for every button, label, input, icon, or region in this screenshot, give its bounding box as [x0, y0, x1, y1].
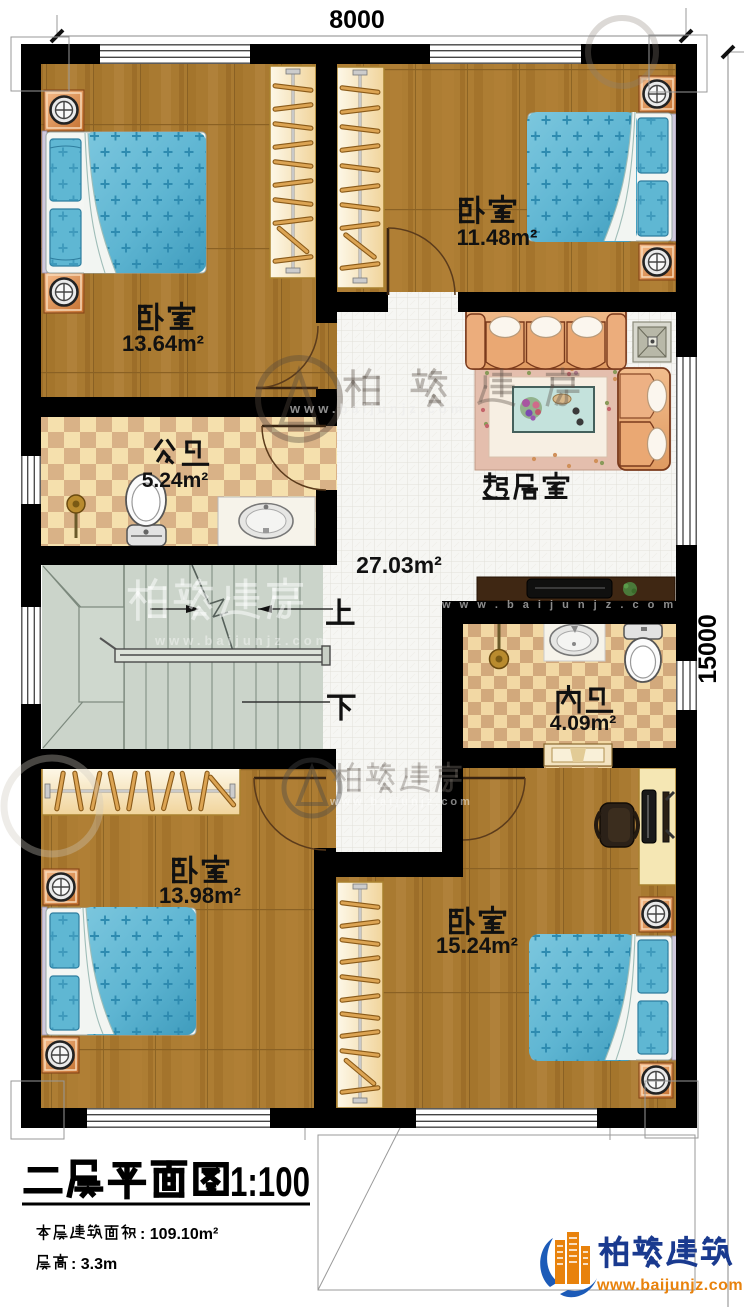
svg-text:4.09m²: 4.09m² [550, 712, 617, 735]
svg-text:15000: 15000 [694, 614, 722, 684]
svg-text:: 3.3m: : 3.3m [71, 1256, 117, 1273]
svg-text:w w w . b a i j u n j z . c o: w w w . b a i j u n j z . c o m [441, 599, 676, 611]
svg-text:www.baijunjz.com: www.baijunjz.com [329, 796, 473, 808]
svg-text:www.baijunjz.com: www.baijunjz.com [596, 1277, 743, 1294]
svg-text:5.24m²: 5.24m² [142, 469, 209, 492]
svg-text:27.03m²: 27.03m² [356, 552, 442, 578]
svg-text:8000: 8000 [329, 6, 385, 34]
svg-text:www.baijunjz.com: www.baijunjz.com [289, 401, 466, 416]
svg-text:www.baijunjz.com: www.baijunjz.com [154, 633, 331, 648]
svg-text:13.64m²: 13.64m² [122, 331, 204, 356]
svg-text:11.48m²: 11.48m² [457, 225, 538, 250]
svg-text:: 109.10m²: : 109.10m² [140, 1226, 218, 1243]
svg-text:15.24m²: 15.24m² [436, 933, 518, 958]
svg-text:1:100: 1:100 [230, 1158, 310, 1205]
svg-text:13.98m²: 13.98m² [159, 883, 241, 908]
